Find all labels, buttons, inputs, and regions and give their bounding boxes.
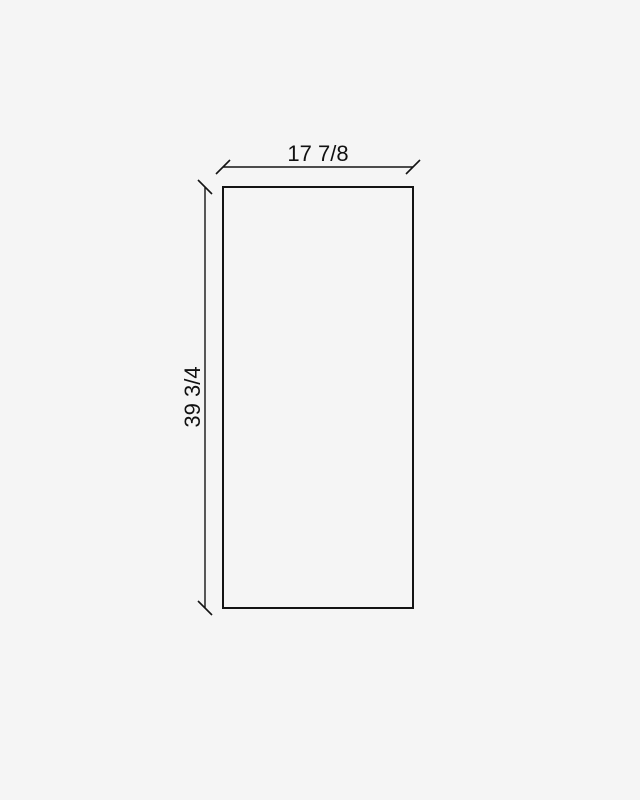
panel-outline [223, 187, 413, 608]
drawing-canvas: 17 7/8 39 3/4 [0, 0, 640, 800]
width-dimension: 17 7/8 [216, 141, 420, 174]
dimension-diagram: 17 7/8 39 3/4 [0, 0, 640, 800]
height-dimension-label: 39 3/4 [180, 366, 205, 427]
height-dimension: 39 3/4 [180, 180, 212, 615]
width-dimension-label: 17 7/8 [287, 141, 348, 166]
